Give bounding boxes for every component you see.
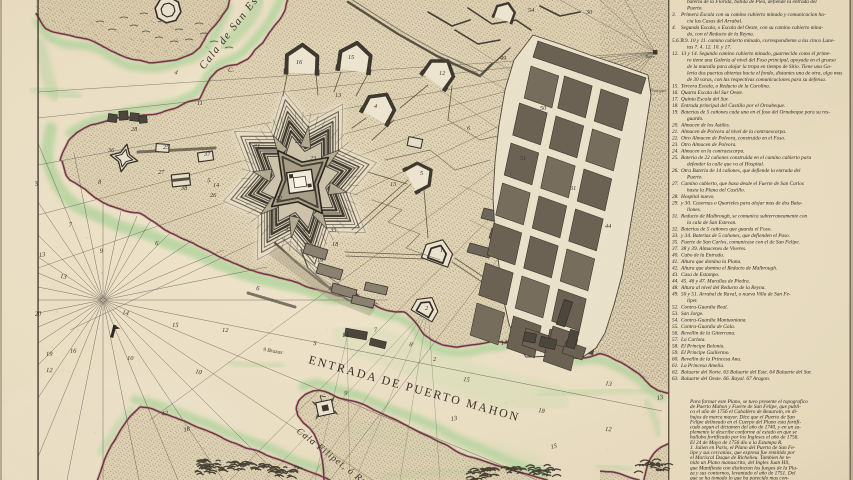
svg-text:54.: 54. bbox=[672, 318, 679, 324]
svg-text:Quinta Escala del Sur.: Quinta Escala del Sur. bbox=[681, 97, 729, 103]
svg-text:12: 12 bbox=[222, 327, 229, 334]
svg-text:Fuerte de San Carlos, comunica: Fuerte de San Carlos, comunicase con el … bbox=[680, 240, 800, 246]
svg-text:41.: 41. bbox=[672, 259, 679, 265]
svg-text:14: 14 bbox=[342, 332, 349, 339]
svg-text:51: 51 bbox=[520, 155, 526, 162]
svg-text:Bateria de 22 cañones construi: Bateria de 22 cañones construida en el c… bbox=[681, 155, 812, 161]
svg-text:18.: 18. bbox=[672, 103, 679, 109]
svg-text:12: 12 bbox=[46, 367, 53, 374]
svg-text:12.: 12. bbox=[672, 51, 679, 57]
svg-text:31: 31 bbox=[569, 185, 576, 192]
svg-text:15.: 15. bbox=[672, 84, 679, 90]
svg-text:26.: 26. bbox=[672, 168, 679, 174]
svg-text:32.: 32. bbox=[672, 227, 679, 233]
svg-text:Otro Almacen de Polvora.: Otro Almacen de Polvora. bbox=[681, 142, 737, 148]
svg-text:La Princesa Amelia.: La Princesa Amelia. bbox=[680, 363, 724, 369]
svg-text:19: 19 bbox=[46, 351, 53, 358]
svg-text:3.: 3. bbox=[672, 12, 676, 18]
svg-text:Tercera Escala, o Reducto de l: Tercera Escala, o Reducto de la Carolina… bbox=[681, 84, 770, 90]
svg-text:Almacen en la contraescarpa.: Almacen en la contraescarpa. bbox=[680, 149, 745, 155]
svg-text:23: 23 bbox=[310, 155, 316, 162]
svg-text:y 30. Casernas o Quarteles par: y 30. Casernas o Quarteles para alojar m… bbox=[680, 201, 803, 207]
svg-text:El Principe Guillermo.: El Principe Guillermo. bbox=[680, 350, 730, 356]
svg-text:C.: C. bbox=[228, 67, 234, 74]
svg-text:20.: 20. bbox=[672, 123, 679, 129]
svg-text:63.: 63. bbox=[672, 376, 679, 382]
svg-text:26: 26 bbox=[210, 192, 217, 199]
svg-text:ro tiene una Galeria al nivel: ro tiene una Galeria al nivel del Foso p… bbox=[687, 58, 836, 64]
svg-text:31.: 31. bbox=[672, 214, 679, 220]
svg-text:28.: 28. bbox=[672, 194, 679, 200]
svg-text:Puerto.: Puerto. bbox=[686, 6, 703, 12]
svg-text:10: 10 bbox=[127, 355, 134, 362]
svg-text:Contra-Guardia Real.: Contra-Guardia Real. bbox=[681, 305, 728, 311]
svg-text:23.: 23. bbox=[672, 142, 679, 148]
svg-text:13: 13 bbox=[390, 181, 396, 188]
svg-text:59.: 59. bbox=[672, 350, 679, 356]
svg-text:37: 37 bbox=[203, 151, 211, 158]
svg-text:13: 13 bbox=[335, 92, 341, 99]
svg-text:15: 15 bbox=[348, 54, 354, 61]
svg-text:61.: 61. bbox=[672, 363, 679, 369]
svg-text:Altura que domina la Plana.: Altura que domina la Plana. bbox=[680, 259, 741, 265]
svg-text:guardo.: guardo. bbox=[687, 116, 703, 122]
svg-text:44.: 44. bbox=[672, 279, 679, 285]
svg-text:58.: 58. bbox=[672, 344, 679, 350]
svg-text:Principal: Principal bbox=[649, 88, 667, 93]
svg-text:4.: 4. bbox=[672, 25, 676, 31]
svg-text:16: 16 bbox=[296, 59, 303, 66]
svg-text:12: 12 bbox=[439, 70, 445, 77]
svg-text:37.: 37. bbox=[672, 246, 679, 252]
svg-text:19: 19 bbox=[317, 257, 323, 264]
svg-text:Contra-Guardia Mantuoniana.: Contra-Guardia Mantuoniana. bbox=[681, 318, 747, 324]
svg-text:Almacen de los Astiles.: Almacen de los Astiles. bbox=[680, 123, 730, 129]
svg-text:de la muralla para alojar la t: de la muralla para alojar la tropa en ti… bbox=[687, 64, 832, 70]
svg-text:8.9. 10 y 11. camino cubierto: 8.9. 10 y 11. camino cubierto minado, co… bbox=[681, 38, 835, 44]
svg-text:Baterias de 5 cañones cada una: Baterias de 5 cañones cada una en el fos… bbox=[681, 109, 830, 116]
svg-text:14: 14 bbox=[213, 182, 219, 189]
svg-text:2: 2 bbox=[425, 305, 428, 312]
svg-text:Altura que domina el Reducto d: Altura que domina el Reducto de Malbroug… bbox=[680, 266, 777, 272]
svg-text:Torre: Torre bbox=[645, 54, 655, 59]
svg-text:33: 33 bbox=[284, 226, 291, 233]
svg-text:Baluarte del Oeste. 66. Rayal.: Baluarte del Oeste. 66. Rayal. 67 Aragon… bbox=[681, 376, 770, 382]
svg-text:hasta la Plana del Castillo.: hasta la Plana del Castillo. bbox=[687, 188, 745, 194]
svg-text:Primera Escala con su camino c: Primera Escala con su camino cubierto mi… bbox=[680, 12, 826, 18]
svg-text:la cala de San Estevan.: la cala de San Estevan. bbox=[687, 220, 737, 226]
svg-text:38 y 39. Almacenes de Viveres.: 38 y 39. Almacenes de Viveres. bbox=[681, 246, 746, 252]
svg-text:18: 18 bbox=[332, 241, 339, 248]
svg-text:12: 12 bbox=[605, 426, 613, 433]
svg-text:32: 32 bbox=[275, 195, 282, 202]
svg-text:42.: 42. bbox=[672, 266, 679, 272]
svg-text:50: 50 bbox=[540, 105, 547, 112]
svg-text:24.: 24. bbox=[672, 149, 679, 155]
svg-text:28: 28 bbox=[131, 126, 138, 133]
svg-text:llones.: llones. bbox=[687, 207, 701, 213]
svg-text:1: 1 bbox=[440, 247, 443, 254]
svg-text:do, con el Reducto de la Reyna: do, con el Reducto de la Reyna. bbox=[687, 32, 754, 38]
svg-text:13 y 14. Segundo camino cubier: 13 y 14. Segundo camino cubierto minado,… bbox=[681, 51, 831, 57]
svg-text:Reducto de Malbrough, se comun: Reducto de Malbrough, se comunica subter… bbox=[680, 214, 808, 220]
svg-text:15: 15 bbox=[172, 322, 179, 329]
svg-text:y 34. Baterias de 5 cañones, q: y 34. Baterias de 5 cañones, que defiend… bbox=[680, 232, 790, 239]
svg-text:Altura al nivel del Reducto de: Altura al nivel del Reducto de la Reyna. bbox=[680, 285, 766, 291]
svg-text:defender la calle que va al Ho: defender la calle que va al Hospital. bbox=[687, 161, 764, 168]
svg-text:Entrada principal del Castillo: Entrada principal del Castillo por el Or… bbox=[680, 103, 785, 109]
svg-text:Quarta Escala del Sur Oeste.: Quarta Escala del Sur Oeste. bbox=[681, 90, 743, 96]
svg-text:29.: 29. bbox=[672, 201, 679, 207]
svg-text:leria dos puertas abiertas hac: leria dos puertas abiertas hacia el fond… bbox=[687, 70, 842, 77]
svg-text:Puerto.: Puerto. bbox=[686, 175, 703, 181]
svg-text:49: 49 bbox=[500, 55, 506, 62]
svg-text:49.: 49. bbox=[672, 292, 679, 298]
svg-text:lipet.: lipet. bbox=[687, 298, 698, 304]
svg-text:La Carlota.: La Carlota. bbox=[680, 337, 706, 343]
svg-text:Revellin de la Princesa Ana.: Revellin de la Princesa Ana. bbox=[680, 357, 741, 363]
svg-text:62.: 62. bbox=[672, 370, 679, 376]
svg-text:11: 11 bbox=[197, 100, 203, 107]
svg-text:57.: 57. bbox=[672, 337, 679, 343]
svg-text:bateria de la Florida, batida: bateria de la Florida, batida de Piéa, d… bbox=[687, 0, 817, 5]
svg-text:25.: 25. bbox=[672, 155, 679, 161]
svg-text:Contra-Guardia de Gala.: Contra-Guardia de Gala. bbox=[681, 324, 735, 330]
svg-text:16: 16 bbox=[70, 348, 77, 355]
svg-text:22: 22 bbox=[295, 138, 301, 145]
svg-text:cia las Casas del Arrabal.: cia las Casas del Arrabal. bbox=[687, 19, 742, 25]
svg-text:Revellin de la Gitterrana.: Revellin de la Gitterrana. bbox=[680, 331, 735, 337]
svg-text:50 y 51. Arrabal de Raval, o n: 50 y 51. Arrabal de Raval, o nueva Villa… bbox=[681, 292, 791, 298]
svg-text:Baluarte del Norte. 63 Baluart: Baluarte del Norte. 63 Baluarte del Este… bbox=[681, 370, 812, 376]
svg-text:36: 36 bbox=[107, 147, 115, 154]
svg-text:16.: 16. bbox=[672, 90, 679, 96]
svg-text:Baterias de 5 cañones que guar: Baterias de 5 cañones que guarda el Foso… bbox=[681, 227, 772, 233]
svg-text:Segunda Escala, o Escala del O: Segunda Escala, o Escala del Oeste, con … bbox=[681, 25, 823, 31]
svg-text:5: 5 bbox=[420, 170, 423, 177]
svg-text:El Principe Bolonia.: El Principe Bolonia. bbox=[680, 344, 725, 350]
svg-text:30: 30 bbox=[585, 9, 593, 16]
svg-text:que se ha tomado lo que ha par: que se ha tomado lo que ha parecido mas … bbox=[690, 476, 789, 480]
svg-text:22.: 22. bbox=[672, 136, 679, 142]
svg-text:52.: 52. bbox=[672, 305, 679, 311]
svg-text:25: 25 bbox=[163, 144, 169, 151]
svg-text:45. 46 y 47. Murallas de Piedr: 45. 46 y 47. Murallas de Piedra. bbox=[681, 279, 750, 285]
svg-text:Hospital nuevo.: Hospital nuevo. bbox=[680, 194, 715, 200]
svg-text:60.: 60. bbox=[672, 357, 679, 363]
svg-text:35.: 35. bbox=[672, 240, 679, 246]
svg-text:54: 54 bbox=[528, 7, 534, 14]
svg-text:53.: 53. bbox=[672, 311, 679, 317]
svg-text:San Jorge.: San Jorge. bbox=[681, 311, 703, 317]
svg-text:43.: 43. bbox=[672, 272, 679, 278]
svg-text:38: 38 bbox=[180, 185, 188, 192]
svg-text:56.: 56. bbox=[672, 331, 679, 337]
svg-text:27.: 27. bbox=[672, 181, 679, 187]
svg-text:34: 34 bbox=[301, 227, 308, 234]
svg-text:tas 7. 4. 12. 10. y 17.: tas 7. 4. 12. 10. y 17. bbox=[687, 45, 731, 51]
svg-text:Casa de Estampo.: Casa de Estampo. bbox=[681, 272, 719, 278]
svg-text:21: 21 bbox=[254, 143, 260, 150]
svg-text:Otro Almacen de Polvora, const: Otro Almacen de Polvora, construido en e… bbox=[681, 136, 785, 142]
svg-text:48.: 48. bbox=[672, 285, 679, 291]
svg-text:Camino cubierto, que baxa desd: Camino cubierto, que baxa desde el Fuert… bbox=[681, 181, 804, 187]
svg-text:de 30 varas, con las respectiv: de 30 varas, con las respectivas comunic… bbox=[687, 76, 826, 83]
svg-text:40.: 40. bbox=[672, 253, 679, 259]
svg-text:27: 27 bbox=[158, 169, 165, 176]
svg-text:55.: 55. bbox=[672, 324, 679, 330]
svg-text:Otra Bateria de 14 cañones, qu: Otra Bateria de 14 cañones, que defiende… bbox=[681, 167, 801, 174]
svg-text:19.: 19. bbox=[672, 110, 679, 116]
svg-text:Cabo de la Entrada.: Cabo de la Entrada. bbox=[681, 253, 724, 259]
svg-text:4: 4 bbox=[374, 103, 377, 110]
svg-text:10: 10 bbox=[655, 466, 662, 473]
svg-text:35: 35 bbox=[329, 227, 336, 234]
svg-text:33.: 33. bbox=[672, 233, 679, 239]
svg-text:21.: 21. bbox=[672, 129, 679, 135]
svg-text:44: 44 bbox=[605, 223, 611, 230]
svg-text:17.: 17. bbox=[672, 97, 679, 103]
svg-text:Almacen de Polvora al nivel de: Almacen de Polvora al nivel de la contra… bbox=[680, 129, 786, 135]
